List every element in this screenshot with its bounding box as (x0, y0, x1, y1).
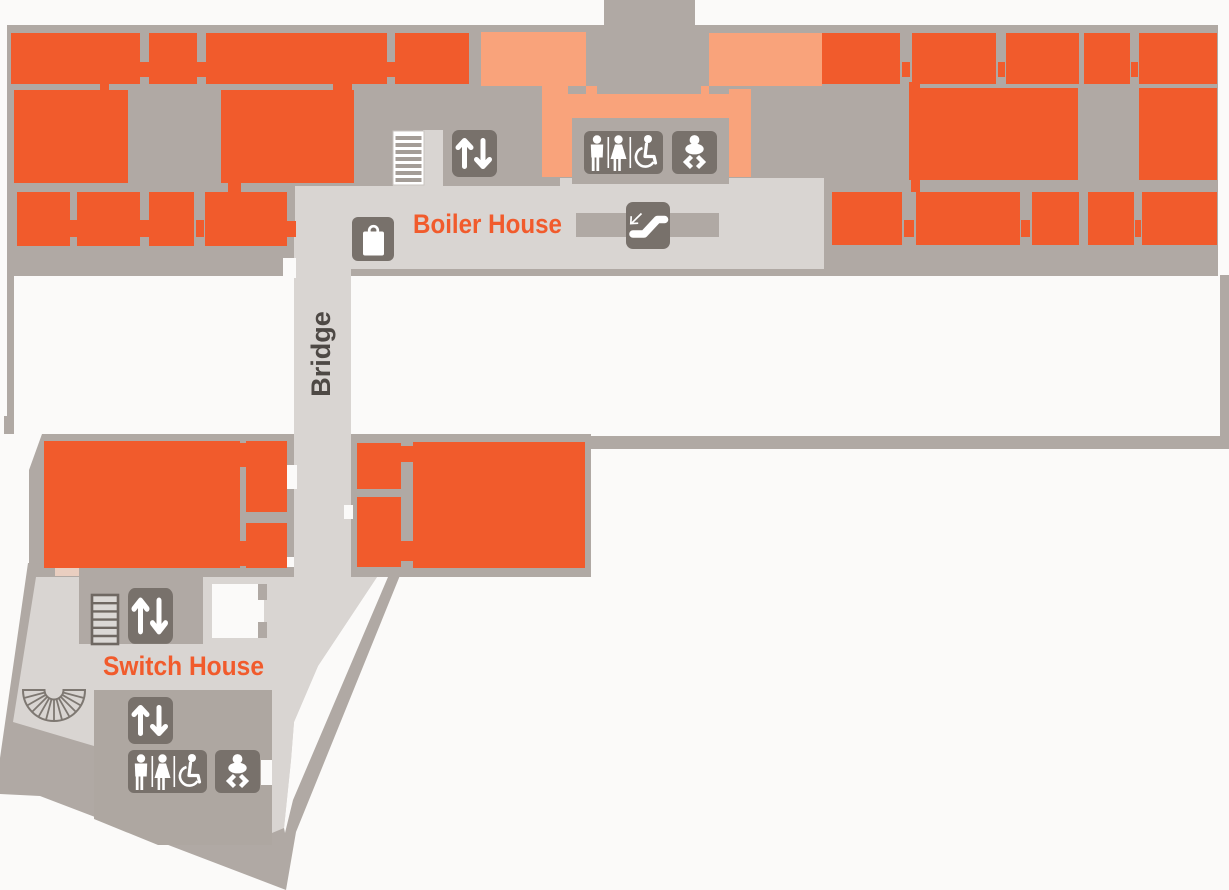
svg-text:Switch House: Switch House (103, 651, 264, 681)
svg-text:Bridge: Bridge (306, 311, 336, 397)
svg-text:Boiler House: Boiler House (413, 209, 562, 239)
